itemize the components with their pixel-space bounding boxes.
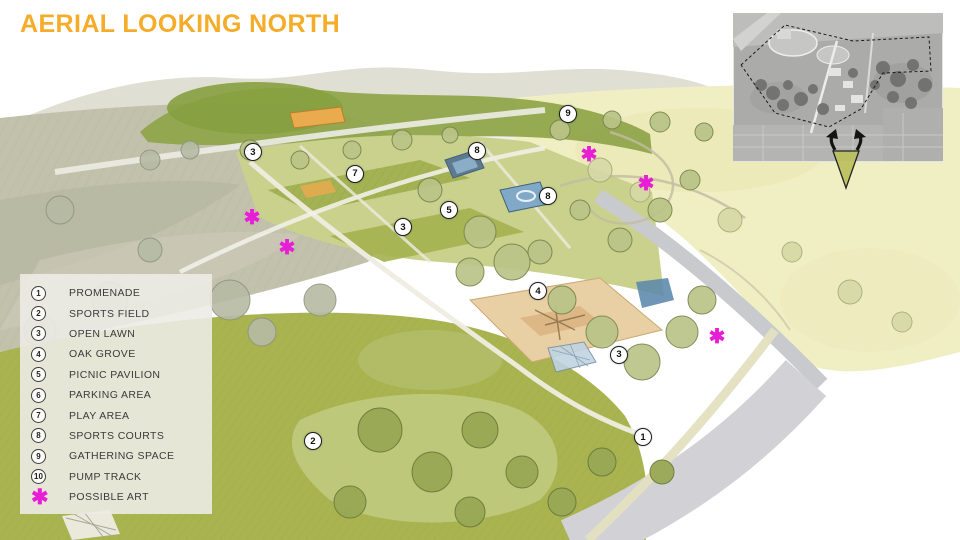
legend-item: 10PUMP TRACK [31, 467, 212, 487]
legend-item-label: PICNIC PAVILION [69, 369, 160, 381]
inset-aerial-photo [733, 13, 943, 191]
legend-item: 5PICNIC PAVILION [31, 365, 212, 385]
legend-number-badge: 8 [31, 428, 46, 443]
legend-item: 8SPORTS COURTS [31, 426, 212, 446]
legend-item-label: PUMP TRACK [69, 471, 141, 483]
legend-item: ✱POSSIBLE ART [31, 487, 212, 507]
legend-item: 1PROMENADE [31, 283, 212, 303]
legend-item: 7PLAY AREA [31, 405, 212, 425]
legend-item: 3OPEN LAWN [31, 324, 212, 344]
legend-number-badge: 5 [31, 367, 46, 382]
legend-number-badge: 1 [31, 286, 46, 301]
legend-item-label: OAK GROVE [69, 348, 136, 360]
legend-item-label: OPEN LAWN [69, 328, 135, 340]
slide: AERIAL LOOKING NORTH [0, 0, 960, 540]
legend-item-label: PARKING AREA [69, 389, 151, 401]
page-title: AERIAL LOOKING NORTH [20, 10, 340, 39]
legend-number-badge: 6 [31, 388, 46, 403]
legend-list: 1PROMENADE2SPORTS FIELD3OPEN LAWN4OAK GR… [31, 283, 212, 507]
legend-item-label: SPORTS FIELD [69, 308, 149, 320]
legend-item-label: POSSIBLE ART [69, 491, 149, 503]
legend-number-badge: 7 [31, 408, 46, 423]
art-marker-icon: ✱ [31, 490, 46, 505]
legend-item-label: PROMENADE [69, 287, 140, 299]
legend-item: 9GATHERING SPACE [31, 446, 212, 466]
legend-number-badge: 2 [31, 306, 46, 321]
legend-item-label: GATHERING SPACE [69, 450, 174, 462]
legend-panel: 1PROMENADE2SPORTS FIELD3OPEN LAWN4OAK GR… [20, 274, 212, 514]
legend-item-label: PLAY AREA [69, 410, 129, 422]
legend-number-badge: 3 [31, 326, 46, 341]
legend-number-badge: 10 [31, 469, 46, 484]
legend-item: 6PARKING AREA [31, 385, 212, 405]
legend-item: 4OAK GROVE [31, 344, 212, 364]
legend-number-badge: 4 [31, 347, 46, 362]
legend-item-label: SPORTS COURTS [69, 430, 164, 442]
legend-number-badge: 9 [31, 449, 46, 464]
location-inset [733, 13, 943, 191]
legend-item: 2SPORTS FIELD [31, 303, 212, 323]
